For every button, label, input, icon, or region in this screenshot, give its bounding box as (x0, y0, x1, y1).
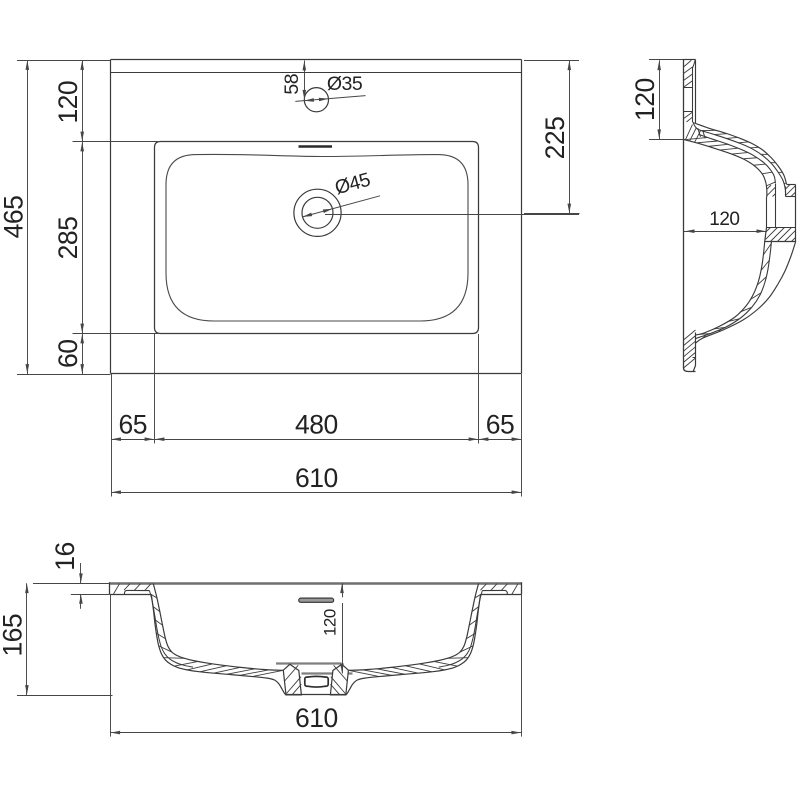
svg-text:120: 120 (53, 81, 83, 124)
svg-text:Ø45: Ø45 (333, 169, 374, 200)
svg-text:60: 60 (53, 340, 83, 368)
svg-text:16: 16 (50, 542, 80, 570)
svg-text:Ø35: Ø35 (327, 73, 363, 95)
svg-text:225: 225 (540, 117, 570, 160)
svg-text:120: 120 (630, 78, 660, 121)
svg-text:465: 465 (0, 196, 28, 239)
svg-text:285: 285 (53, 217, 83, 260)
svg-text:58: 58 (281, 74, 303, 95)
svg-text:65: 65 (486, 410, 514, 440)
svg-text:610: 610 (295, 463, 338, 493)
svg-text:65: 65 (118, 410, 146, 440)
svg-text:610: 610 (295, 703, 338, 733)
svg-text:480: 480 (295, 410, 338, 440)
svg-text:120: 120 (709, 209, 739, 230)
svg-text:120: 120 (320, 609, 339, 636)
svg-text:165: 165 (0, 614, 28, 657)
